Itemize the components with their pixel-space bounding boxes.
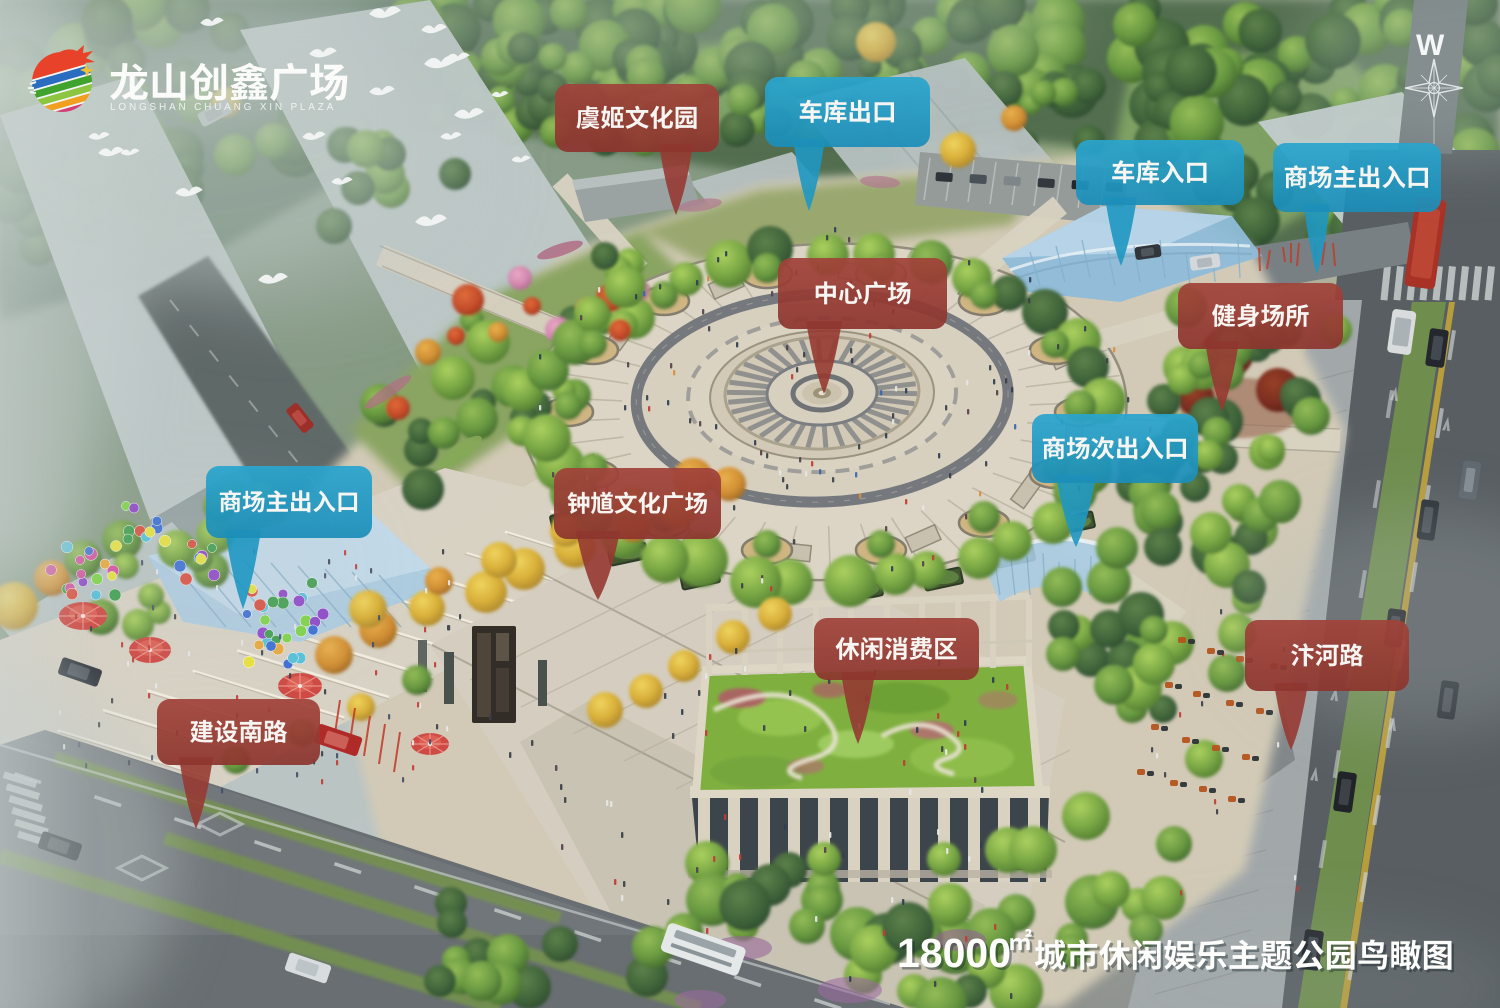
svg-text:W: W — [1416, 29, 1445, 62]
svg-text:LONGSHAN CHUANG XIN PLAZA: LONGSHAN CHUANG XIN PLAZA — [110, 102, 336, 113]
svg-text:18000: 18000 — [897, 930, 1011, 976]
